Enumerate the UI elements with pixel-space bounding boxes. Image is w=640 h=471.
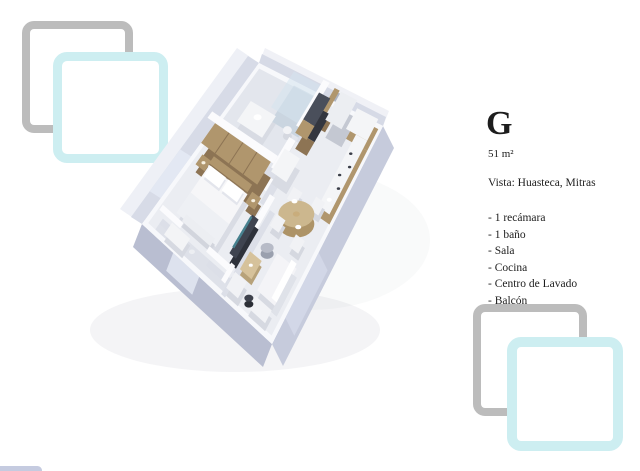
- decor-corner-sliver: [0, 466, 42, 471]
- feature-item: - Centro de Lavado: [488, 276, 577, 293]
- brochure-page: G 51 m² Vista: Huasteca, Mitras - 1 recá…: [0, 0, 640, 471]
- feature-item: - 1 recámara: [488, 210, 577, 227]
- unit-letter: G: [486, 107, 513, 141]
- feature-item: - 1 baño: [488, 227, 577, 244]
- unit-area: 51 m²: [488, 148, 514, 160]
- decor-square-teal-topleft: [53, 52, 168, 163]
- feature-item: - Balcón: [488, 293, 577, 310]
- unit-vista: Vista: Huasteca, Mitras: [488, 177, 596, 189]
- feature-item: - Sala: [488, 243, 577, 260]
- feature-item: - Cocina: [488, 260, 577, 277]
- decor-square-teal-bottomright: [507, 337, 623, 451]
- feature-list: - 1 recámara- 1 baño- Sala- Cocina- Cent…: [488, 210, 577, 309]
